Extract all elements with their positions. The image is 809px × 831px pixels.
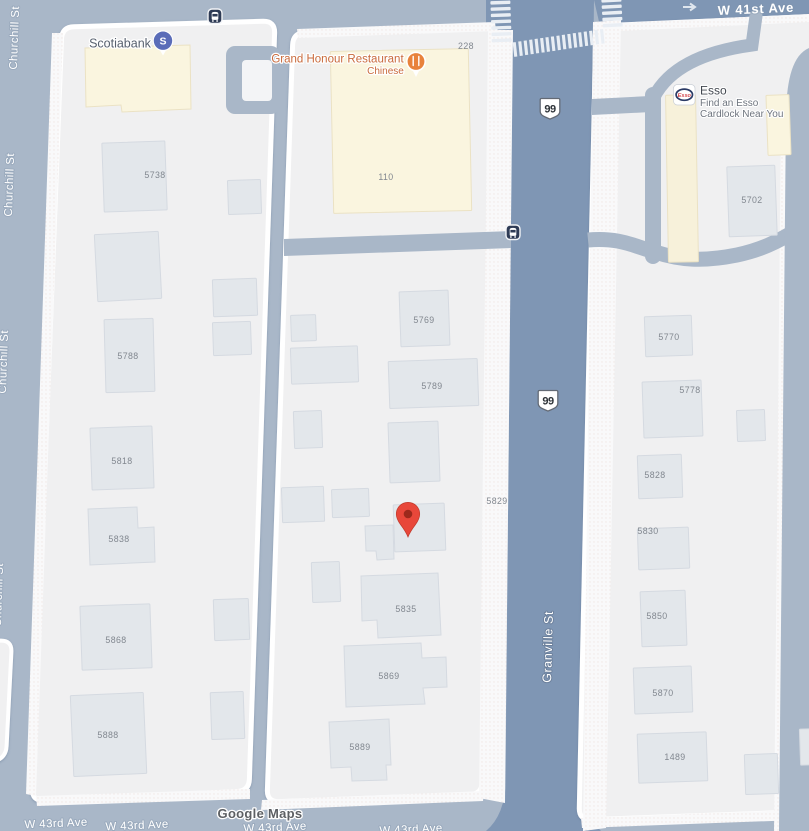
svg-text:W 43rd Ave: W 43rd Ave <box>105 819 169 831</box>
svg-text:Scotiabank: Scotiabank <box>89 37 152 51</box>
svg-text:Granville St: Granville St <box>540 611 556 683</box>
svg-text:5868: 5868 <box>105 635 126 645</box>
svg-text:5838: 5838 <box>108 534 129 544</box>
svg-text:5778: 5778 <box>679 385 700 395</box>
svg-text:5835: 5835 <box>395 604 416 614</box>
svg-text:S: S <box>159 36 166 48</box>
svg-text:5770: 5770 <box>658 332 679 342</box>
svg-text:5869: 5869 <box>378 671 399 681</box>
svg-text:5769: 5769 <box>413 315 434 325</box>
svg-text:Find an Esso: Find an Esso <box>700 98 759 109</box>
svg-text:5870: 5870 <box>652 688 673 698</box>
svg-text:Churchill St: Churchill St <box>8 6 22 70</box>
svg-text:5889: 5889 <box>349 742 370 752</box>
svg-text:Esso: Esso <box>700 84 727 98</box>
svg-text:Cardlock Near You: Cardlock Near You <box>700 109 783 120</box>
svg-text:1489: 1489 <box>664 752 685 762</box>
svg-text:5818: 5818 <box>111 456 132 466</box>
svg-text:99: 99 <box>542 396 554 408</box>
svg-text:Churchill St: Churchill St <box>3 153 17 217</box>
svg-text:5789: 5789 <box>421 381 442 391</box>
svg-text:99: 99 <box>544 104 556 116</box>
svg-text:5828: 5828 <box>644 470 665 480</box>
svg-text:5850: 5850 <box>646 611 667 621</box>
svg-text:Grand Honour Restaurant: Grand Honour Restaurant <box>271 54 404 66</box>
svg-text:Esso: Esso <box>678 93 692 99</box>
svg-text:5738: 5738 <box>144 170 165 180</box>
svg-text:5829: 5829 <box>486 496 507 506</box>
svg-text:5702: 5702 <box>741 195 762 205</box>
svg-text:5888: 5888 <box>97 730 118 740</box>
svg-text:W 43rd Ave: W 43rd Ave <box>24 817 88 831</box>
svg-text:228: 228 <box>458 41 474 51</box>
svg-text:110: 110 <box>378 172 393 182</box>
svg-text:5830: 5830 <box>637 526 658 536</box>
svg-text:Chinese: Chinese <box>367 66 404 77</box>
svg-text:W 43rd Ave: W 43rd Ave <box>243 821 307 831</box>
svg-text:5788: 5788 <box>117 351 138 361</box>
svg-text:Google Maps: Google Maps <box>218 806 303 821</box>
